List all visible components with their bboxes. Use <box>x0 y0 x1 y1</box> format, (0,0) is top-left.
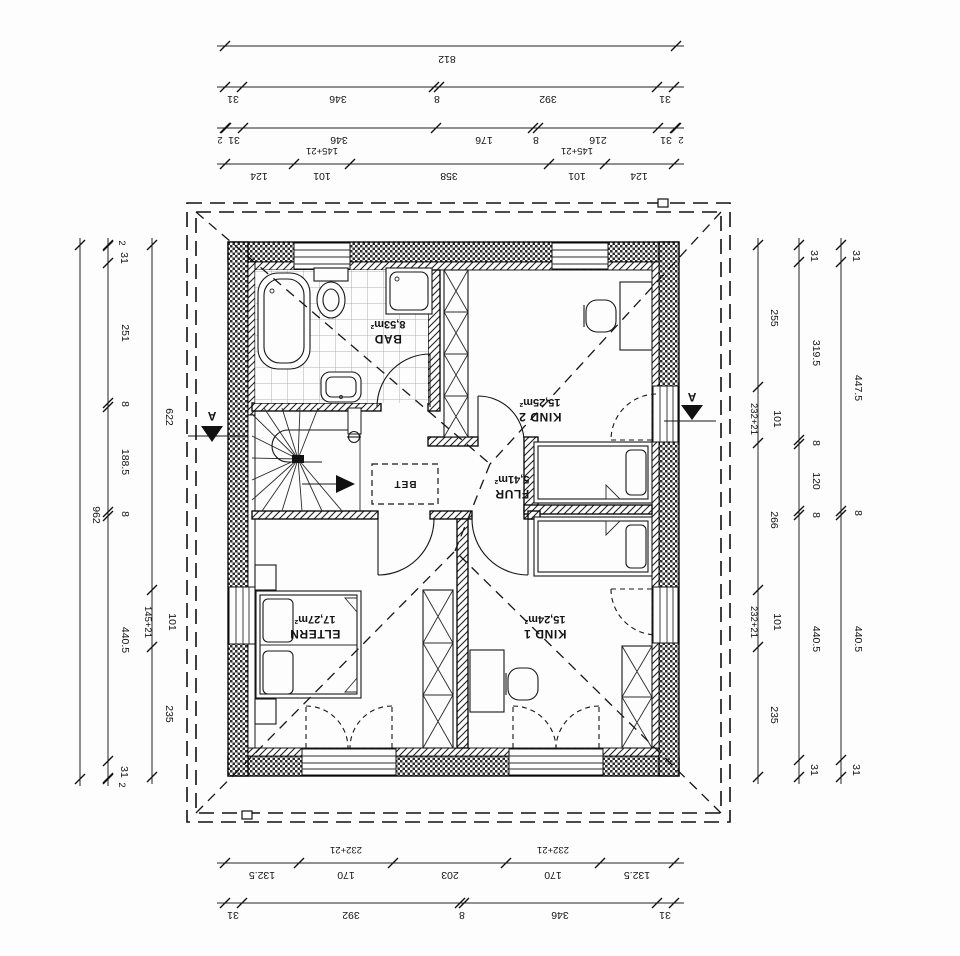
swing-dormer-kind1 <box>513 706 599 748</box>
dim: 132.5 <box>249 869 275 881</box>
dim: 31 <box>227 909 239 921</box>
dim: 31 <box>227 93 239 105</box>
window-right-kind1 <box>653 587 678 643</box>
dim: 346 <box>329 93 347 105</box>
roof-mark-bottom <box>242 811 252 819</box>
bet-label: BET <box>394 478 417 489</box>
dim: 8 <box>533 134 539 146</box>
dim: 101 <box>771 613 783 631</box>
kind2-door <box>478 396 524 442</box>
dim: 235 <box>768 706 780 724</box>
dim-chains-top: 812 31 346 8 392 31 2 31 346 176 8 216 3… <box>217 41 684 182</box>
wardrobe-eltern <box>423 590 453 748</box>
dim-note: 232+21 <box>537 844 569 855</box>
dim: 346 <box>330 134 348 146</box>
eltern-door <box>378 519 434 575</box>
roof-mark-top <box>658 199 668 207</box>
section-letter-right: A <box>687 390 696 404</box>
dim-chains-bottom: 132.5 170 203 170 132.5 232+21 232+21 31… <box>217 844 684 921</box>
svg-text:5,41m²: 5,41m² <box>494 473 529 485</box>
dim: 31 <box>228 134 240 146</box>
dim: 251 <box>119 324 131 342</box>
bed-kind1 <box>534 517 652 576</box>
dim: 622 <box>163 408 175 426</box>
svg-text:15,24m²: 15,24m² <box>524 613 565 625</box>
dim-left-total: 962 <box>90 506 102 524</box>
dim: 8 <box>434 93 440 105</box>
dim: 2 <box>217 134 222 145</box>
dim: 101 <box>568 170 586 182</box>
dim: 170 <box>337 869 355 881</box>
dim: 8 <box>119 401 131 407</box>
dim: 255 <box>768 309 780 327</box>
dim: 8 <box>852 510 864 516</box>
dim: 266 <box>768 511 780 529</box>
dim: 176 <box>475 134 493 146</box>
dim: 2 <box>116 782 127 787</box>
section-letter-left: A <box>207 409 216 423</box>
dim-note: 232+21 <box>330 844 362 855</box>
dim: 31 <box>808 764 820 776</box>
toilet <box>314 268 348 318</box>
dim: 8 <box>119 511 131 517</box>
dim: 31 <box>118 766 130 778</box>
dim: 132.5 <box>624 869 650 881</box>
dim: 2 <box>678 134 683 145</box>
bathroom <box>255 268 432 407</box>
dim: 31 <box>850 250 862 262</box>
kind1-door <box>472 519 528 575</box>
shower <box>386 268 432 314</box>
bed-kind2 <box>534 442 652 503</box>
svg-text:15,25m²: 15,25m² <box>519 396 560 408</box>
dim: 31 <box>659 909 671 921</box>
dim: 346 <box>551 909 569 921</box>
dim: 216 <box>589 134 607 146</box>
floor-plan-drawing: BET A A BAD 8,53m² KIND 2 15,25m² FLUR <box>0 0 960 956</box>
dim: 188.5 <box>119 449 131 475</box>
scanned-floor-plan-page: BET A A BAD 8,53m² KIND 2 15,25m² FLUR <box>0 0 960 956</box>
dim-chains-left: 962 2 31 251 8 188.5 8 440.5 31 2 622 10… <box>75 238 178 788</box>
window-bottom-kind1 <box>509 749 603 775</box>
dim: 124 <box>630 170 648 182</box>
swing-kind1-window <box>611 589 656 635</box>
dim: 124 <box>250 170 268 182</box>
dim-chains-right: 255 101 232+21 266 101 232+21 235 31 319… <box>748 238 864 784</box>
dim: 358 <box>440 170 458 182</box>
window-left-eltern <box>229 587 255 644</box>
bet-box: BET <box>372 464 438 504</box>
dim: 392 <box>539 93 557 105</box>
window-bottom-eltern <box>302 749 396 775</box>
dim: 447.5 <box>852 375 864 401</box>
svg-text:8,53m²: 8,53m² <box>370 318 405 330</box>
window-top-bad <box>294 243 350 269</box>
window-top-kind2 <box>552 243 608 269</box>
desk-kind1 <box>470 650 504 712</box>
dim-note: 232+21 <box>748 606 759 638</box>
svg-text:ELTERN: ELTERN <box>290 627 341 641</box>
bathtub <box>258 273 310 369</box>
dim: 31 <box>659 93 671 105</box>
dim-top-total: 812 <box>438 53 456 65</box>
svg-text:BAD: BAD <box>374 332 402 346</box>
stair-direction-arrow <box>336 475 355 493</box>
dim: 170 <box>544 869 562 881</box>
dim: 31 <box>850 764 862 776</box>
dim: 440.5 <box>852 626 864 652</box>
label-kind2: KIND 2 15,25m² <box>519 396 562 424</box>
svg-text:KIND 2: KIND 2 <box>519 410 562 424</box>
washbasin <box>321 372 361 402</box>
stair-handrail-bracket <box>348 408 361 434</box>
dim-note: 145+21 <box>306 145 338 156</box>
dim: 101 <box>166 613 178 631</box>
dim: 203 <box>441 869 459 881</box>
dim-note: 232+21 <box>748 403 759 435</box>
dim: 101 <box>771 410 783 428</box>
dim: 31 <box>808 250 820 262</box>
dim: 31 <box>660 134 672 146</box>
wardrobe-kind1 <box>622 646 652 748</box>
wardrobe-kind2 <box>444 270 468 437</box>
svg-text:FLUR: FLUR <box>495 487 529 501</box>
dim: 8 <box>459 909 465 921</box>
dim: 319.5 <box>810 340 822 366</box>
dim-note: 145+21 <box>142 606 153 638</box>
dim: 235 <box>163 705 175 723</box>
svg-text:17,27m²: 17,27m² <box>294 613 335 625</box>
swing-kind2-window <box>611 394 656 440</box>
dim: 31 <box>118 252 130 264</box>
chair-kind1 <box>506 668 538 700</box>
chair-kind2 <box>584 300 616 332</box>
label-kind1: KIND 1 15,24m² <box>524 613 567 641</box>
dim: 101 <box>313 170 331 182</box>
dim: 392 <box>342 909 360 921</box>
dim: 8 <box>810 440 822 446</box>
swing-dormer-eltern <box>306 706 392 748</box>
staircase <box>252 408 361 511</box>
dim: 2 <box>116 240 127 245</box>
dim: 120 <box>810 472 822 490</box>
dim-note: 145+21 <box>561 145 593 156</box>
dim: 440.5 <box>810 626 822 652</box>
window-right-kind2 <box>653 386 678 442</box>
dim: 440.5 <box>119 627 131 653</box>
dim: 8 <box>810 512 822 518</box>
svg-text:KIND 1: KIND 1 <box>524 627 567 641</box>
